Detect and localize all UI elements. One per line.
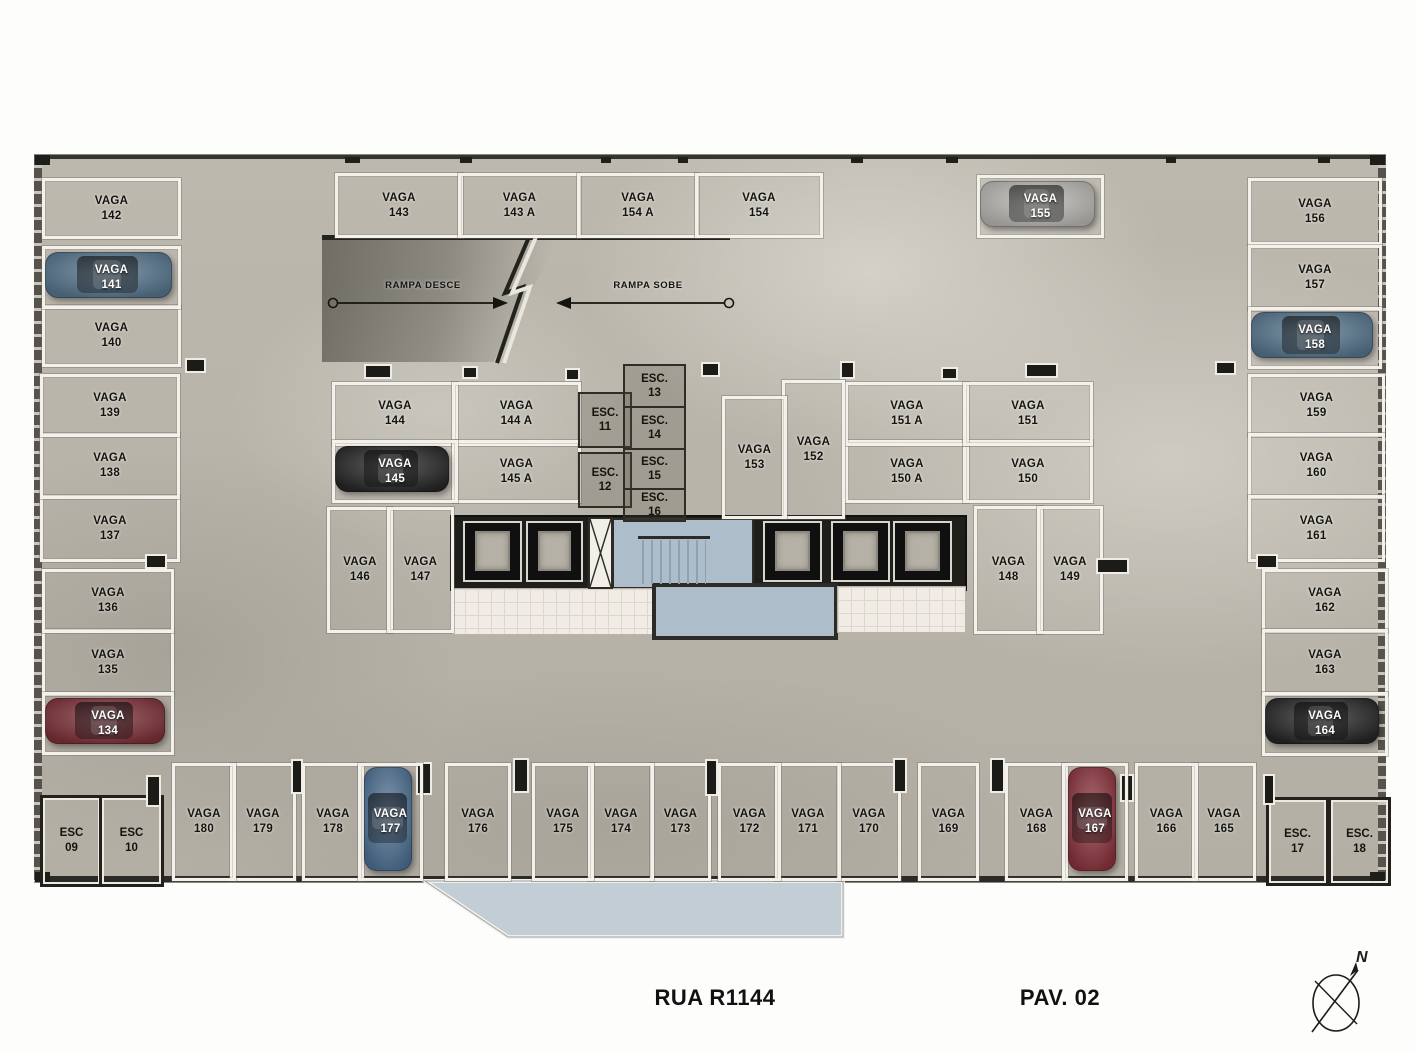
stall-label: VAGA 145 [378, 457, 412, 487]
parking-stall-148: VAGA 148 [974, 506, 1043, 634]
stall-label: VAGA 143 A [503, 191, 537, 221]
structural-column [943, 369, 956, 378]
stall-label: VAGA 172 [733, 807, 767, 837]
parking-stall-174: VAGA 174 [588, 763, 654, 881]
street-entry-ramp [416, 876, 856, 948]
structural-column [147, 556, 165, 567]
stall-label: VAGA 153 [738, 443, 772, 473]
stair-16: ESC. 16 [623, 488, 686, 522]
parking-stall-176: VAGA 176 [445, 763, 511, 881]
street-label: RUA R1144 [600, 985, 830, 1011]
stall-label: VAGA 135 [91, 648, 125, 678]
structural-column [703, 364, 718, 375]
parking-stall-163: VAGA 163 [1262, 629, 1388, 696]
structural-column [1258, 556, 1276, 567]
structural-column [707, 761, 716, 794]
structural-column [842, 363, 853, 377]
stall-label: VAGA 176 [461, 807, 495, 837]
stall-label: VAGA 170 [852, 807, 886, 837]
stair-label: ESC. 11 [592, 406, 619, 435]
stall-label: VAGA 142 [95, 194, 129, 224]
elevator-shaft [526, 521, 583, 582]
parking-stall-153: VAGA 153 [722, 396, 787, 519]
stall-label: VAGA 180 [187, 807, 221, 837]
stall-label: VAGA 146 [343, 555, 377, 585]
stall-label: VAGA 173 [664, 807, 698, 837]
stall-label: VAGA 148 [992, 555, 1026, 585]
wall-column-tick [1166, 157, 1176, 163]
structural-column [366, 366, 390, 377]
parking-stall-159: VAGA 159 [1248, 374, 1385, 437]
structural-column [293, 761, 301, 792]
stair-label: ESC. 18 [1346, 827, 1373, 857]
elevator-shaft [831, 521, 890, 582]
wall-column-tick [1318, 157, 1330, 163]
parking-stall-144: VAGA 144 [332, 382, 458, 446]
stair-14: ESC. 14 [623, 406, 686, 450]
stair-17: ESC. 17 [1266, 797, 1329, 886]
parking-stall-179: VAGA 179 [230, 763, 296, 881]
structural-column [1027, 365, 1056, 376]
stall-label: VAGA 177 [374, 807, 408, 837]
parking-stall-177: VAGA 177 [358, 763, 423, 881]
wall-column-tick [460, 157, 472, 163]
stair-18: ESC. 18 [1328, 797, 1391, 886]
stall-label: VAGA 159 [1300, 391, 1334, 421]
service-shaft-x [589, 518, 612, 588]
elevator-shaft [763, 521, 822, 582]
stair-13: ESC. 13 [623, 364, 686, 408]
lobby-tiles-right [838, 587, 965, 632]
parking-stall-146: VAGA 146 [327, 507, 393, 633]
stair-label: ESC. 17 [1284, 827, 1311, 857]
structural-column [464, 368, 476, 377]
structural-column [1098, 560, 1127, 572]
stall-label: VAGA 160 [1300, 451, 1334, 481]
structural-column [992, 760, 1003, 791]
stall-label: VAGA 155 [1024, 192, 1058, 222]
parking-stall-139: VAGA 139 [40, 374, 180, 437]
corner-column [1370, 155, 1385, 165]
parking-stall-166: VAGA 166 [1135, 763, 1198, 881]
parking-stall-164: VAGA 164 [1262, 692, 1388, 756]
stall-label: VAGA 144 [378, 399, 412, 429]
parking-stall-142: VAGA 142 [42, 178, 181, 239]
stair-label: ESC 10 [120, 826, 144, 856]
parking-stall-171: VAGA 171 [775, 763, 841, 881]
stair-rail [638, 536, 710, 539]
parking-stall-155: VAGA 155 [977, 175, 1104, 238]
stall-label: VAGA 141 [95, 263, 129, 293]
parking-stall-151-a: VAGA 151 A [845, 382, 969, 446]
stall-label: VAGA 175 [546, 807, 580, 837]
stall-label: VAGA 156 [1298, 197, 1332, 227]
stall-label: VAGA 168 [1020, 807, 1054, 837]
parking-stall-156: VAGA 156 [1248, 178, 1382, 245]
stall-label: VAGA 166 [1150, 807, 1184, 837]
stall-label: VAGA 169 [932, 807, 966, 837]
ramp-direction-arrows [322, 290, 732, 316]
parking-stall-150-a: VAGA 150 A [845, 440, 969, 503]
parking-stall-145: VAGA 145 [332, 440, 458, 503]
parking-stall-138: VAGA 138 [40, 433, 180, 499]
stair-10: ESC 10 [99, 795, 164, 887]
parking-stall-170: VAGA 170 [837, 763, 901, 881]
parking-stall-161: VAGA 161 [1248, 495, 1385, 562]
structural-column [1217, 363, 1234, 373]
parking-stall-172: VAGA 172 [718, 763, 781, 881]
stall-label: VAGA 178 [316, 807, 350, 837]
floorplan-page: RAMPA DESCE RAMPA SOBE [0, 0, 1417, 1052]
parking-stall-157: VAGA 157 [1248, 245, 1382, 311]
stall-label: VAGA 162 [1308, 586, 1342, 616]
structural-column [895, 760, 905, 791]
stall-label: VAGA 157 [1298, 263, 1332, 293]
floor-label: PAV. 02 [985, 985, 1135, 1011]
stall-label: VAGA 167 [1078, 807, 1112, 837]
parking-stall-140: VAGA 140 [42, 305, 181, 367]
parking-stall-136: VAGA 136 [42, 569, 174, 633]
stair-label: ESC. 12 [592, 466, 619, 495]
parking-stall-160: VAGA 160 [1248, 433, 1385, 499]
stall-label: VAGA 151 [1011, 399, 1045, 429]
stall-label: VAGA 138 [93, 451, 127, 481]
structural-column [567, 370, 578, 379]
stall-label: VAGA 149 [1053, 555, 1087, 585]
wall-column-tick [946, 157, 958, 163]
parking-stall-145-a: VAGA 145 A [452, 440, 581, 503]
parking-stall-167: VAGA 167 [1062, 763, 1128, 881]
corner-column [35, 155, 50, 165]
wall-top [35, 155, 1385, 159]
garage-floorplan: RAMPA DESCE RAMPA SOBE [35, 155, 1385, 882]
parking-stall-141: VAGA 141 [42, 246, 181, 309]
stall-label: VAGA 137 [93, 514, 127, 544]
stall-label: VAGA 171 [791, 807, 825, 837]
stall-label: VAGA 144 A [500, 399, 534, 429]
stair-15: ESC. 15 [623, 448, 686, 490]
stall-label: VAGA 150 A [890, 457, 924, 487]
parking-stall-147: VAGA 147 [387, 507, 454, 633]
parking-stall-169: VAGA 169 [918, 763, 979, 881]
north-compass: N [1296, 948, 1380, 1048]
parking-stall-168: VAGA 168 [1005, 763, 1068, 881]
wall-column-tick [678, 157, 688, 163]
stair-label: ESC. 16 [641, 491, 668, 520]
parking-stall-143: VAGA 143 [335, 173, 463, 238]
stair-label: ESC. 14 [641, 414, 668, 443]
parking-stall-154: VAGA 154 [695, 173, 823, 238]
elevator-shaft [893, 521, 952, 582]
lobby-tiles-left [452, 589, 652, 634]
stall-label: VAGA 147 [404, 555, 438, 585]
parking-stall-154-a: VAGA 154 A [577, 173, 699, 238]
wall-column-tick [601, 157, 611, 163]
structural-column [187, 360, 204, 371]
parking-stall-151: VAGA 151 [963, 382, 1093, 446]
stall-label: VAGA 163 [1308, 648, 1342, 678]
stall-label: VAGA 151 A [890, 399, 924, 429]
parking-stall-180: VAGA 180 [172, 763, 236, 881]
structural-column [1265, 776, 1273, 803]
parking-stall-165: VAGA 165 [1192, 763, 1256, 881]
structural-column [148, 777, 159, 805]
stair-label: ESC. 15 [641, 455, 668, 484]
stall-label: VAGA 158 [1298, 323, 1332, 353]
wall-column-tick [345, 157, 360, 163]
parking-stall-134: VAGA 134 [42, 692, 174, 755]
stall-label: VAGA 143 [382, 191, 416, 221]
stall-label: VAGA 179 [246, 807, 280, 837]
parking-stall-149: VAGA 149 [1037, 506, 1103, 634]
stall-label: VAGA 139 [93, 391, 127, 421]
stall-label: VAGA 136 [91, 586, 125, 616]
parking-stall-135: VAGA 135 [42, 629, 174, 696]
parking-stall-162: VAGA 162 [1262, 569, 1388, 633]
parking-stall-173: VAGA 173 [650, 763, 711, 881]
parking-stall-178: VAGA 178 [302, 763, 364, 881]
parking-stall-150: VAGA 150 [963, 440, 1093, 503]
stall-label: VAGA 161 [1300, 514, 1334, 544]
parking-stall-144-a: VAGA 144 A [452, 382, 581, 446]
stall-label: VAGA 154 [742, 191, 776, 221]
stair-label: ESC. 13 [641, 372, 668, 401]
stall-label: VAGA 152 [797, 435, 831, 465]
lobby-hall [652, 583, 838, 640]
stall-label: VAGA 150 [1011, 457, 1045, 487]
parking-stall-137: VAGA 137 [40, 495, 180, 562]
parking-stall-143-a: VAGA 143 A [458, 173, 581, 238]
stair-09: ESC 09 [40, 795, 103, 887]
parking-stall-152: VAGA 152 [782, 380, 845, 519]
stall-label: VAGA 140 [95, 321, 129, 351]
parking-stall-158: VAGA 158 [1248, 307, 1382, 369]
stair-treads [642, 540, 706, 584]
stall-label: VAGA 154 A [621, 191, 655, 221]
compass-n-label: N [1356, 949, 1368, 966]
stair-label: ESC 09 [60, 826, 84, 856]
structural-column [515, 760, 527, 791]
stall-label: VAGA 174 [604, 807, 638, 837]
stall-label: VAGA 145 A [500, 457, 534, 487]
stall-label: VAGA 165 [1207, 807, 1241, 837]
wall-column-tick [851, 157, 863, 163]
parking-stall-175: VAGA 175 [532, 763, 594, 881]
elevator-shaft [463, 521, 522, 582]
stall-label: VAGA 134 [91, 709, 125, 739]
stall-label: VAGA 164 [1308, 709, 1342, 739]
